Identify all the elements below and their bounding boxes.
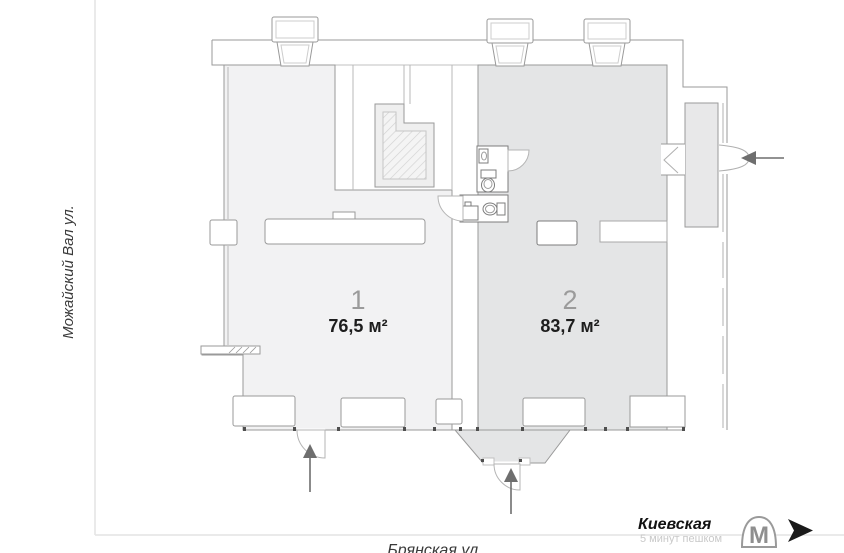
chimney xyxy=(584,19,630,66)
side-vestibule xyxy=(685,103,718,227)
unit-1-number: 1 xyxy=(350,285,365,315)
wc-block xyxy=(460,146,508,222)
metro-logo-icon: М xyxy=(742,517,776,549)
window-box xyxy=(630,396,685,427)
direction-arrow-icon xyxy=(788,519,813,542)
chimney xyxy=(272,17,318,66)
wall-column xyxy=(210,220,237,245)
metro-station-label: Киевская xyxy=(638,516,712,533)
window-box xyxy=(523,398,585,426)
street-label-left: Можайский Вал ул. xyxy=(60,205,77,339)
counter-unit1 xyxy=(265,219,425,244)
metro-block: Киевская 5 минут пешком М xyxy=(638,516,813,549)
sink-handle xyxy=(465,202,471,206)
wall-ledge xyxy=(201,346,260,354)
building: 1 76,5 м² 2 83,7 м² xyxy=(201,17,784,514)
passage-unit2 xyxy=(600,221,667,242)
unit-2-area: 83,7 м² xyxy=(540,316,599,336)
metro-logo-letter: М xyxy=(749,522,769,549)
floor-plan-canvas: 1 76,5 м² 2 83,7 м² Можайский Вал ул. Бр… xyxy=(0,0,844,553)
hatched-shaft xyxy=(375,104,434,187)
floor-plan-page: 1 76,5 м² 2 83,7 м² Можайский Вал ул. Бр… xyxy=(0,0,844,553)
unit-2-number: 2 xyxy=(562,285,577,315)
window-box xyxy=(233,396,295,426)
counter-unit2 xyxy=(537,221,577,245)
entrance-bay xyxy=(455,430,570,463)
toilet-tank xyxy=(497,203,505,215)
window-box xyxy=(436,399,462,424)
window-box xyxy=(341,398,405,427)
chimney-stacks xyxy=(272,17,630,66)
chimney xyxy=(487,19,533,66)
street-label-bottom: Брянская ул. xyxy=(387,542,482,553)
door-frame xyxy=(483,458,494,465)
unit-1-region xyxy=(202,65,452,430)
toilet-icon xyxy=(482,178,495,192)
unit-1-area: 76,5 м² xyxy=(328,316,387,336)
unit-2-region xyxy=(478,65,667,430)
metro-walk-note: 5 минут пешком xyxy=(640,533,722,545)
sink-icon xyxy=(463,206,478,220)
toilet-tank xyxy=(481,170,496,178)
